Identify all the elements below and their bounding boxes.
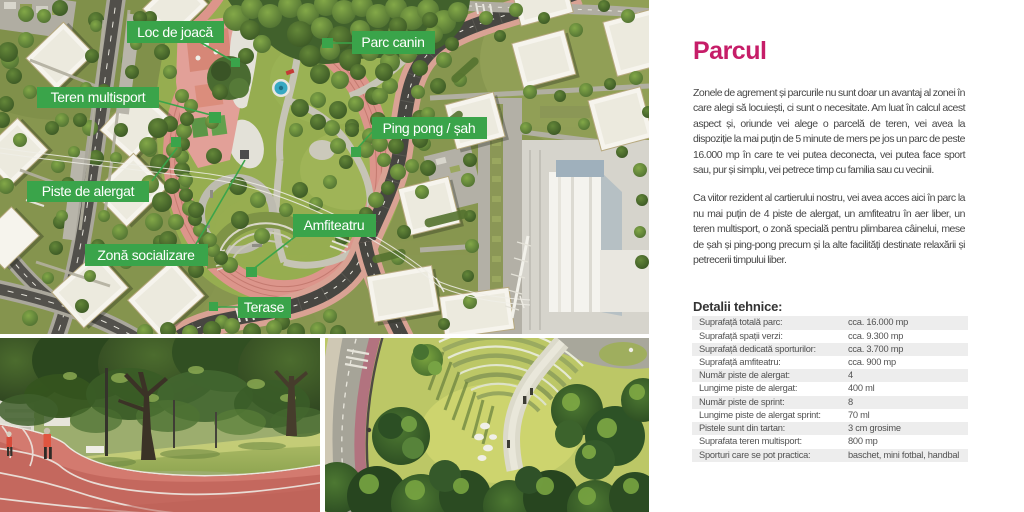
svg-text:Ping pong / șah: Ping pong / șah [383,120,476,136]
svg-text:Piste de alergat: Piste de alergat [42,183,135,199]
svg-text:Terase: Terase [244,299,285,315]
svg-text:Amfiteatru: Amfiteatru [304,217,365,233]
svg-text:Loc de joacă: Loc de joacă [137,24,213,40]
svg-text:Parc canin: Parc canin [361,34,424,50]
svg-text:Zonă socializare: Zonă socializare [97,247,195,263]
svg-text:Teren multisport: Teren multisport [51,89,146,105]
